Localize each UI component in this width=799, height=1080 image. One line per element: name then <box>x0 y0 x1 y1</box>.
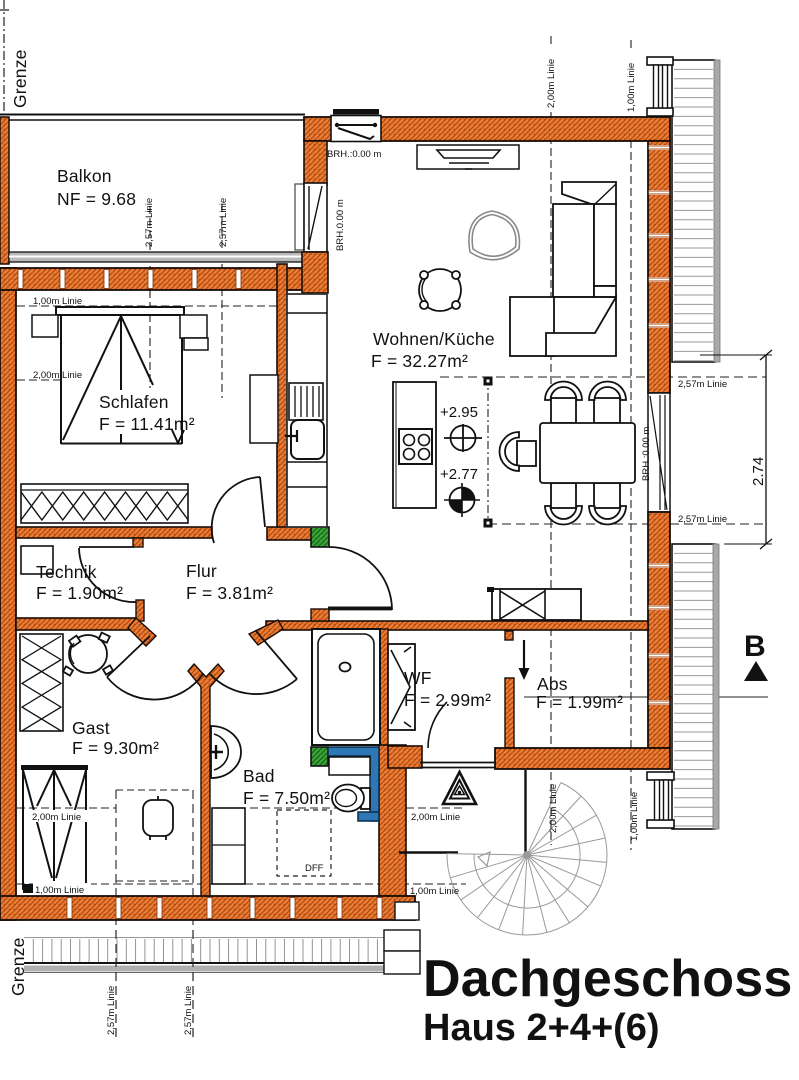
svg-text:WF: WF <box>404 668 432 688</box>
svg-text:2,57m Linie: 2,57m Linie <box>144 198 155 247</box>
svg-text:Dachgeschoss: Dachgeschoss <box>423 950 792 1008</box>
svg-text:1,00m Linie: 1,00m Linie <box>33 296 82 307</box>
svg-text:Balkon: Balkon <box>57 166 112 186</box>
svg-text:B: B <box>744 630 766 663</box>
svg-text:F = 9.30m²: F = 9.30m² <box>72 738 159 758</box>
svg-text:F = 1.99m²: F = 1.99m² <box>536 692 623 712</box>
svg-text:2,57m Linie: 2,57m Linie <box>183 986 194 1035</box>
svg-text:2,57m Linie: 2,57m Linie <box>106 986 117 1035</box>
svg-text:Abs: Abs <box>537 674 568 694</box>
svg-text:2.74: 2.74 <box>750 457 767 486</box>
svg-text:F = 11.41m²: F = 11.41m² <box>99 414 195 434</box>
svg-text:2,00m Linie: 2,00m Linie <box>33 370 82 381</box>
svg-text:2,00m Linie: 2,00m Linie <box>32 812 81 823</box>
svg-text:1,00m Linie: 1,00m Linie <box>410 886 459 897</box>
svg-text:1,00m Linie: 1,00m Linie <box>626 63 637 112</box>
svg-text:Technik: Technik <box>36 562 97 582</box>
svg-text:F = 2.99m²: F = 2.99m² <box>404 690 491 710</box>
svg-text:Gast: Gast <box>72 718 110 738</box>
svg-text:BRH.:0.00 m: BRH.:0.00 m <box>327 149 381 160</box>
svg-text:2,57m Linie: 2,57m Linie <box>678 514 727 525</box>
svg-text:Grenze: Grenze <box>8 937 28 996</box>
svg-text:DFF: DFF <box>305 863 324 874</box>
svg-text:F = 1.90m²: F = 1.90m² <box>36 583 123 603</box>
svg-text:2,00m Linie: 2,00m Linie <box>546 59 557 108</box>
svg-text:BRH.:0.00 m: BRH.:0.00 m <box>641 427 652 481</box>
svg-text:NF = 9.68: NF = 9.68 <box>57 189 136 209</box>
svg-text:Haus 2+4+(6): Haus 2+4+(6) <box>423 1007 660 1049</box>
svg-text:Bad: Bad <box>243 766 275 786</box>
svg-text:2,00m Linie: 2,00m Linie <box>411 812 460 823</box>
svg-text:F = 7.50m²: F = 7.50m² <box>243 788 330 808</box>
svg-text:Schlafen: Schlafen <box>99 392 169 412</box>
svg-text:1,00m Linie: 1,00m Linie <box>35 885 84 896</box>
svg-text:Flur: Flur <box>186 561 217 581</box>
svg-text:BRH.0.00 m: BRH.0.00 m <box>335 199 346 251</box>
svg-text:2,57m Linie: 2,57m Linie <box>678 379 727 390</box>
svg-text:2,00m Linie: 2,00m Linie <box>548 784 559 833</box>
svg-text:F = 3.81m²: F = 3.81m² <box>186 583 273 603</box>
svg-text:Wohnen/Küche: Wohnen/Küche <box>373 329 495 349</box>
svg-text:+2.95: +2.95 <box>440 404 478 421</box>
svg-text:1,00m Linie: 1,00m Linie <box>629 792 640 841</box>
svg-text:2,57m Linie: 2,57m Linie <box>218 198 229 247</box>
svg-text:Grenze: Grenze <box>10 49 30 108</box>
svg-text:+2.77: +2.77 <box>440 466 478 483</box>
svg-text:F = 32.27m²: F = 32.27m² <box>371 351 468 371</box>
